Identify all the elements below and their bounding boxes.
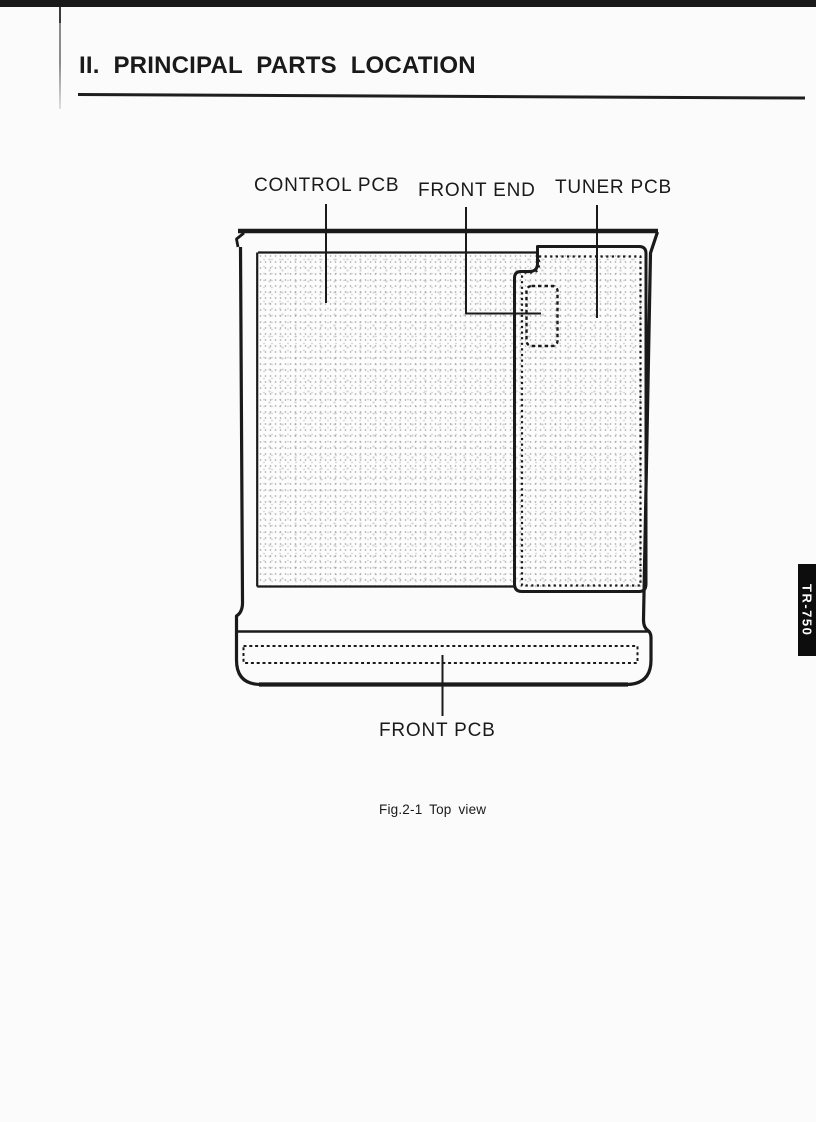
document-page: II. PRINCIPAL PARTS LOCATION CONTROL PCB… (0, 0, 816, 1122)
model-edge-tab-label: TR-750 (800, 584, 815, 636)
front-end-label: FRONT END (418, 180, 536, 202)
front-pcb-label: FRONT PCB (379, 720, 496, 742)
tuner-pcb-label: TUNER PCB (555, 177, 672, 199)
model-edge-tab: TR-750 (798, 564, 816, 656)
leader-line-front-end (466, 207, 541, 314)
front-end-marker (527, 286, 558, 346)
control-pcb-label: CONTROL PCB (254, 175, 399, 197)
tuner-shield-outline (515, 247, 647, 592)
top-view-diagram (0, 0, 816, 1122)
figure-caption: Fig.2-1 Top view (379, 802, 486, 817)
tuner-pcb-dotted-outline (522, 257, 641, 586)
front-pcb-marker (244, 646, 638, 663)
chassis-left-corner-notch (237, 233, 245, 247)
chassis-right-edge (626, 232, 658, 685)
